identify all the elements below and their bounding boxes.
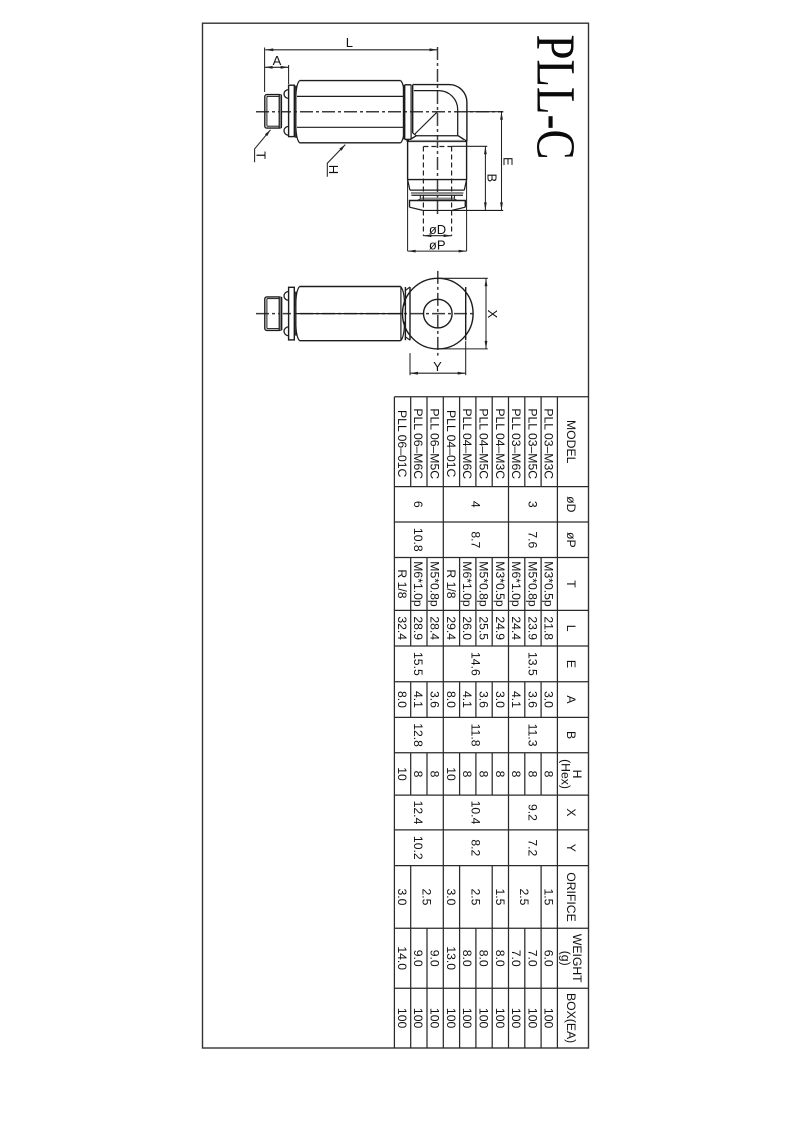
svg-text:PLL 03–M3C: PLL 03–M3C [542, 408, 556, 479]
svg-text:100: 100 [476, 1008, 490, 1029]
svg-text:T: T [254, 151, 269, 159]
svg-text:13.0: 13.0 [444, 946, 458, 970]
svg-text:3.0: 3.0 [444, 889, 458, 906]
svg-text:1.5: 1.5 [542, 889, 556, 906]
svg-text:100: 100 [428, 1008, 442, 1029]
svg-text:PLL 06–M6C: PLL 06–M6C [411, 408, 425, 479]
svg-text:øD: øD [564, 496, 578, 512]
svg-text:8.0: 8.0 [444, 691, 458, 708]
svg-text:PLL-C: PLL-C [525, 35, 586, 160]
svg-text:10.4: 10.4 [468, 801, 482, 825]
svg-text:14.0: 14.0 [395, 946, 409, 970]
svg-text:L: L [346, 35, 353, 50]
svg-text:PLL 03–M5C: PLL 03–M5C [525, 408, 539, 479]
svg-text:PLL 06–01C: PLL 06–01C [395, 410, 409, 478]
svg-text:7.0: 7.0 [509, 950, 523, 967]
svg-text:4.1: 4.1 [411, 691, 425, 708]
svg-text:3.0: 3.0 [493, 691, 507, 708]
svg-text:PLL 04–M6C: PLL 04–M6C [460, 408, 474, 479]
svg-text:8: 8 [509, 771, 523, 778]
svg-text:100: 100 [460, 1008, 474, 1029]
svg-text:PLL 04–M3C: PLL 04–M3C [493, 408, 507, 479]
svg-text:M5*0.8p: M5*0.8p [428, 561, 442, 607]
svg-text:100: 100 [525, 1008, 539, 1029]
svg-text:29.4: 29.4 [444, 616, 458, 640]
svg-text:Y: Y [564, 844, 578, 852]
svg-text:E: E [501, 157, 516, 166]
svg-text:9.0: 9.0 [411, 950, 425, 967]
svg-text:100: 100 [509, 1008, 523, 1029]
svg-text:2.5: 2.5 [517, 889, 531, 906]
svg-text:25.5: 25.5 [476, 616, 490, 640]
svg-text:13.5: 13.5 [525, 652, 539, 676]
svg-text:R 1/8: R 1/8 [395, 569, 409, 598]
svg-text:BOX(EA): BOX(EA) [564, 993, 578, 1043]
svg-text:4: 4 [468, 501, 482, 508]
svg-text:7.0: 7.0 [525, 950, 539, 967]
svg-text:3.0: 3.0 [395, 889, 409, 906]
svg-text:ORIFICE: ORIFICE [564, 872, 578, 921]
svg-text:8: 8 [542, 771, 556, 778]
svg-text:11.8: 11.8 [468, 724, 482, 747]
svg-text:100: 100 [411, 1008, 425, 1029]
svg-text:Y: Y [433, 359, 442, 374]
svg-text:8.0: 8.0 [493, 950, 507, 967]
svg-text:H: H [326, 165, 341, 174]
svg-text:øD: øD [429, 222, 446, 237]
svg-text:øP: øP [564, 532, 578, 548]
svg-text:8: 8 [428, 771, 442, 778]
svg-text:M3*0.5p: M3*0.5p [493, 561, 507, 607]
svg-text:6: 6 [411, 501, 425, 508]
svg-text:(g): (g) [558, 951, 572, 966]
svg-text:10.2: 10.2 [411, 836, 425, 860]
svg-text:24.4: 24.4 [509, 616, 523, 640]
svg-text:T: T [564, 580, 578, 588]
svg-text:1.5: 1.5 [493, 889, 507, 906]
svg-text:3.0: 3.0 [542, 691, 556, 708]
svg-text:100: 100 [395, 1008, 409, 1029]
svg-text:8: 8 [493, 771, 507, 778]
svg-text:10: 10 [444, 767, 458, 781]
svg-text:4.1: 4.1 [460, 691, 474, 708]
svg-text:PLL 03–M6C: PLL 03–M6C [509, 408, 523, 479]
svg-text:28.4: 28.4 [428, 616, 442, 640]
svg-text:L: L [564, 625, 578, 632]
svg-text:14.6: 14.6 [468, 652, 482, 676]
svg-text:23.9: 23.9 [525, 616, 539, 640]
svg-text:B: B [564, 731, 578, 739]
svg-text:12.4: 12.4 [411, 801, 425, 825]
svg-text:(Hex): (Hex) [558, 759, 572, 789]
svg-text:3: 3 [525, 501, 539, 508]
svg-text:24.9: 24.9 [493, 616, 507, 640]
svg-text:100: 100 [493, 1008, 507, 1029]
svg-text:7.6: 7.6 [525, 531, 539, 548]
svg-text:M6*1.0p: M6*1.0p [509, 561, 523, 607]
svg-text:8.2: 8.2 [468, 839, 482, 856]
svg-text:X: X [564, 808, 578, 816]
svg-text:7.2: 7.2 [525, 839, 539, 856]
svg-text:B: B [485, 174, 500, 183]
svg-text:28.9: 28.9 [411, 616, 425, 640]
svg-text:M5*0.8p: M5*0.8p [525, 561, 539, 607]
svg-text:100: 100 [444, 1008, 458, 1029]
svg-text:A: A [564, 695, 578, 704]
svg-text:32.4: 32.4 [395, 616, 409, 640]
svg-text:A: A [273, 53, 282, 68]
svg-text:PLL 04–M5C: PLL 04–M5C [476, 408, 490, 479]
svg-text:8: 8 [525, 771, 539, 778]
svg-text:8.0: 8.0 [395, 691, 409, 708]
svg-text:6.0: 6.0 [542, 950, 556, 967]
svg-text:4.1: 4.1 [509, 691, 523, 708]
svg-text:8: 8 [476, 771, 490, 778]
svg-text:26.0: 26.0 [460, 616, 474, 640]
svg-text:M6*1.0p: M6*1.0p [411, 561, 425, 607]
svg-text:PLL 06–M5C: PLL 06–M5C [428, 408, 442, 479]
svg-text:8: 8 [411, 771, 425, 778]
svg-text:8.7: 8.7 [468, 531, 482, 548]
svg-text:M6*1.0p: M6*1.0p [460, 561, 474, 607]
svg-text:2.5: 2.5 [419, 889, 433, 906]
svg-text:øP: øP [429, 238, 446, 253]
svg-text:R 1/8: R 1/8 [444, 569, 458, 598]
svg-text:3.6: 3.6 [428, 691, 442, 708]
svg-text:3.6: 3.6 [525, 691, 539, 708]
svg-text:12.8: 12.8 [411, 723, 425, 747]
svg-text:100: 100 [542, 1008, 556, 1029]
svg-text:8: 8 [460, 771, 474, 778]
svg-text:8.0: 8.0 [476, 950, 490, 967]
svg-text:2.5: 2.5 [468, 889, 482, 906]
svg-text:10.8: 10.8 [411, 528, 425, 552]
svg-text:10: 10 [395, 767, 409, 781]
svg-text:3.6: 3.6 [476, 691, 490, 708]
svg-text:X: X [485, 310, 500, 319]
svg-text:PLL 04–01C: PLL 04–01C [444, 410, 458, 478]
svg-text:11.3: 11.3 [525, 724, 539, 747]
svg-text:9.2: 9.2 [525, 804, 539, 821]
svg-text:MODEL: MODEL [564, 420, 578, 464]
svg-text:15.5: 15.5 [411, 652, 425, 676]
svg-text:21.8: 21.8 [542, 616, 556, 640]
svg-text:8.0: 8.0 [460, 950, 474, 967]
svg-text:E: E [564, 660, 578, 668]
svg-text:M5*0.8p: M5*0.8p [476, 561, 490, 607]
svg-text:9.0: 9.0 [428, 950, 442, 967]
svg-text:M3*0.5p: M3*0.5p [542, 561, 556, 607]
